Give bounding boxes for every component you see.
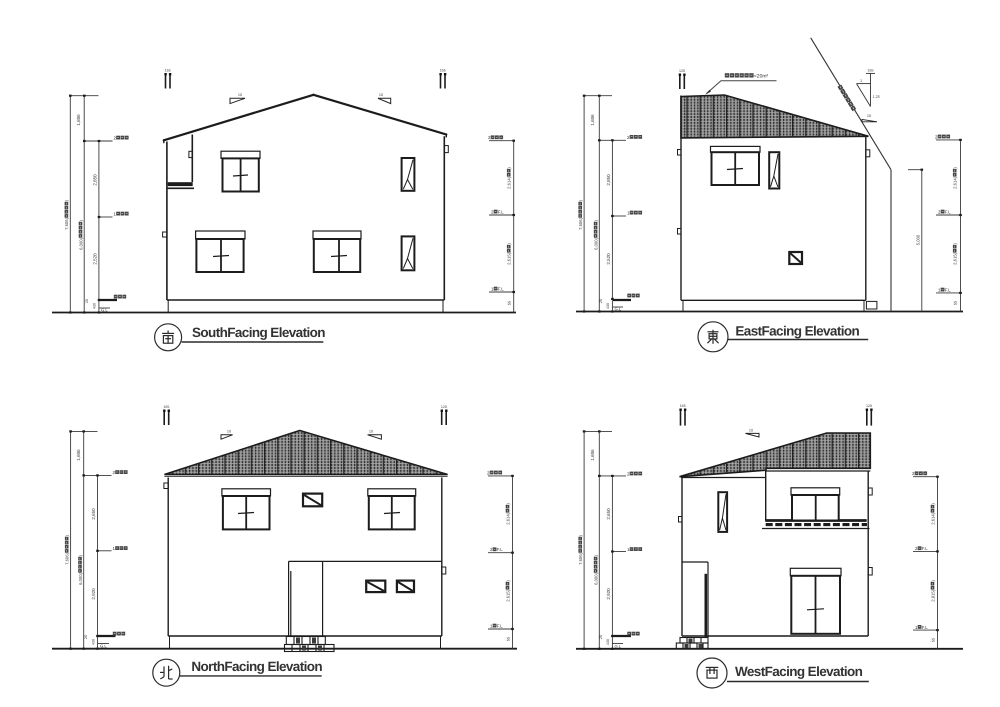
svg-text:1,606: 1,606 [76,449,81,461]
svg-text:430: 430 [606,303,610,309]
svg-text:1,606: 1,606 [76,114,81,126]
svg-text:F.L: F.L [922,546,928,551]
svg-text:10: 10 [749,429,753,433]
svg-text:20: 20 [599,299,603,303]
svg-text:2,615(: 2,615( [953,252,958,264]
svg-text:2,520: 2,520 [93,253,98,265]
svg-text:G.L: G.L [615,307,622,312]
svg-text:6,000(: 6,000( [78,237,83,249]
svg-text:1,606: 1,606 [590,449,595,461]
svg-text:10: 10 [867,114,871,118]
svg-text:2,850: 2,850 [93,174,98,186]
svg-text:<20m²: <20m² [754,74,769,80]
svg-text:2,815(: 2,815( [930,589,935,601]
svg-text:F.L: F.L [945,210,951,215]
svg-text:2,615(: 2,615( [507,252,512,264]
svg-text:7,606(: 7,606( [64,217,69,229]
svg-text:6,000(: 6,000( [78,572,83,584]
svg-text:EastFacing Elevation: EastFacing Elevation [735,324,859,339]
svg-text:2,614(: 2,614( [507,176,512,188]
svg-text:20: 20 [85,299,89,303]
svg-text:120: 120 [441,405,447,409]
svg-text:F.L: F.L [498,210,504,215]
svg-text:55: 55 [508,301,512,305]
svg-text:7,606(: 7,606( [578,217,583,229]
svg-text:F.L: F.L [945,288,951,293]
svg-text:5,000: 5,000 [916,234,921,245]
svg-text:G.L: G.L [615,644,622,649]
svg-text:10: 10 [379,93,383,97]
svg-text:120: 120 [866,404,872,408]
svg-text:G.L: G.L [100,644,107,649]
svg-text:1,606: 1,606 [590,114,595,126]
svg-text:7,606(: 7,606( [578,552,583,564]
svg-text:2,520: 2,520 [606,253,611,265]
svg-text:7,606(: 7,606( [65,552,70,564]
svg-text:165: 165 [680,404,686,408]
svg-text:WestFacing Elevation: WestFacing Elevation [735,664,863,679]
svg-text:F.L: F.L [497,547,503,552]
svg-text:NorthFacing Elevation: NorthFacing Elevation [191,659,322,674]
svg-text:2,614(: 2,614( [953,176,958,188]
svg-text:6,000(: 6,000( [593,237,598,249]
svg-text:165: 165 [440,69,446,73]
svg-text:430: 430 [91,639,95,645]
svg-text:55: 55 [506,637,510,641]
svg-text:2,850: 2,850 [606,174,611,186]
svg-text:6,000(: 6,000( [593,572,598,584]
svg-text:SouthFacing Elevation: SouthFacing Elevation [192,325,325,340]
svg-text:F.L: F.L [922,625,928,630]
svg-text:2,920: 2,920 [91,588,96,600]
svg-text:2,614(: 2,614( [930,512,935,524]
svg-text:10: 10 [227,430,231,434]
svg-text:430: 430 [606,639,610,645]
svg-text:20: 20 [599,635,603,639]
svg-text:55: 55 [954,301,958,305]
svg-text:1: 1 [860,79,862,83]
svg-text:430: 430 [92,303,96,309]
svg-text:2,650: 2,650 [91,508,96,520]
svg-text:F.L: F.L [497,624,503,629]
svg-text:165: 165 [868,69,874,73]
svg-text:2,615(: 2,615( [505,589,510,601]
svg-text:2,614(: 2,614( [505,512,510,524]
svg-text:2,650: 2,650 [606,508,611,520]
svg-text:120: 120 [679,69,685,73]
svg-text:10: 10 [238,93,242,97]
svg-text:F.L: F.L [498,287,504,292]
svg-text:2,920: 2,920 [606,588,611,600]
svg-text:165: 165 [163,405,169,409]
svg-text:10: 10 [369,430,373,434]
svg-text:G.L: G.L [101,308,108,313]
svg-text:55: 55 [931,638,935,642]
svg-text:1.25: 1.25 [873,95,880,99]
svg-text:20: 20 [84,635,88,639]
svg-text:165: 165 [165,69,171,73]
